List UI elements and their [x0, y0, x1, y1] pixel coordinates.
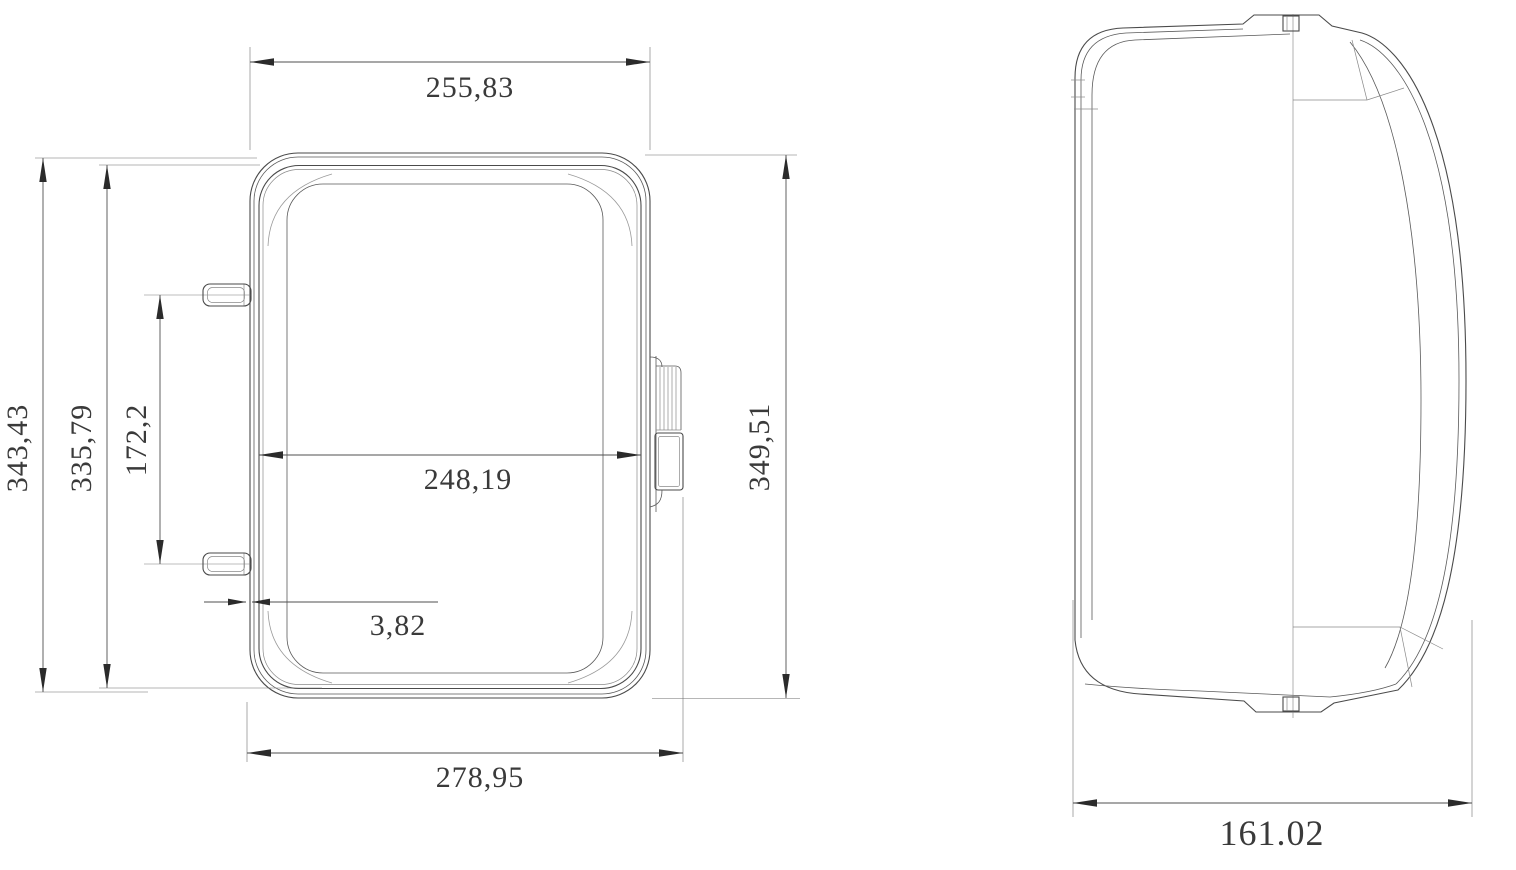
side-connector — [650, 356, 683, 512]
dim-value-front-top-width: 255,83 — [426, 71, 515, 104]
side-clip-top — [1283, 16, 1299, 31]
dim-value-front-right-height: 349,51 — [743, 403, 776, 492]
dimension-front-inner-height: 335,79 — [65, 165, 322, 688]
dim-value-front-inner-height: 335,79 — [65, 404, 98, 493]
dimension-side-depth: 161.02 — [1073, 600, 1472, 853]
dimension-front-top-width: 255,83 — [250, 47, 650, 150]
dim-value-side-depth: 161.02 — [1220, 813, 1325, 853]
front-view-body — [250, 153, 650, 698]
side-clip-bottom — [1283, 697, 1299, 711]
side-view: 161.02 — [1071, 14, 1472, 853]
dimension-front-wall-thickness: 3,82 — [204, 602, 438, 642]
dimension-front-inner-width: 248,19 — [259, 455, 641, 496]
dim-value-front-inner-width: 248,19 — [424, 463, 513, 496]
dimension-front-pin-spacing: 172,2 — [120, 295, 160, 564]
front-view: 255,83 343,43 335,79 172,2 248,19 — [1, 47, 800, 794]
dim-value-front-wall-thickness: 3,82 — [370, 609, 427, 642]
dim-value-front-bottom-width: 278,95 — [436, 761, 525, 794]
dimension-front-bottom-width: 278,95 — [247, 497, 683, 794]
front-lid-panel — [287, 184, 603, 673]
dim-value-front-overall-height: 343,43 — [1, 404, 34, 493]
drawing-canvas: 255,83 343,43 335,79 172,2 248,19 — [0, 0, 1516, 870]
dim-value-front-pin-spacing: 172,2 — [120, 404, 153, 477]
side-view-body — [1071, 14, 1466, 718]
technical-drawing: 255,83 343,43 335,79 172,2 248,19 — [0, 0, 1516, 870]
